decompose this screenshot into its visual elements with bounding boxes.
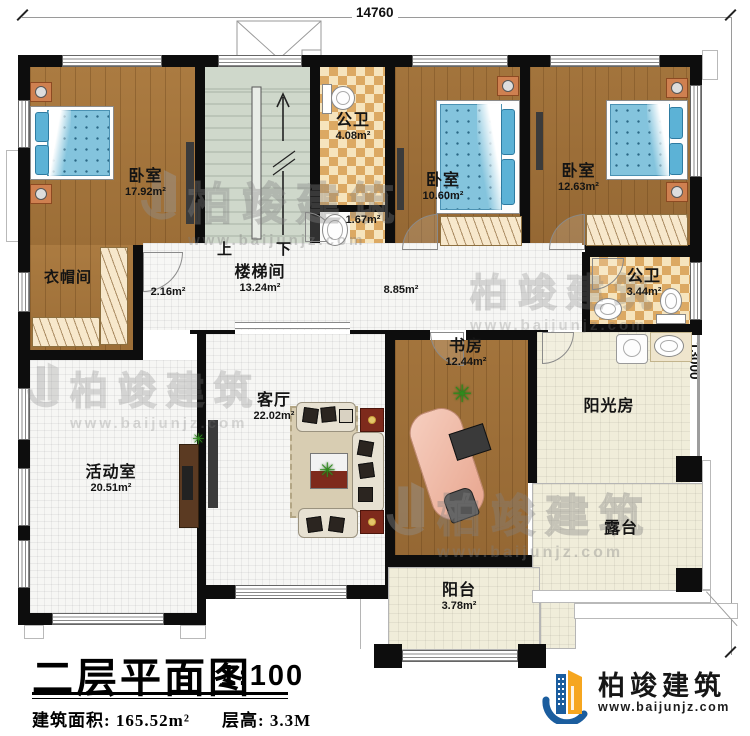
balcony-left-line (360, 599, 361, 649)
room-label-study: 书房12.44m² (438, 338, 494, 368)
plant: ✳ (319, 458, 336, 483)
terrace-post (676, 456, 702, 482)
stairs-down-label: 下 (272, 242, 296, 259)
terrace-parapet-right (702, 460, 711, 590)
room-label-bath-right: 公卫3.44m² (618, 268, 670, 298)
study-top-wall-a (395, 330, 430, 340)
window (18, 540, 30, 588)
brand-logo-icon (538, 666, 596, 724)
window (18, 100, 30, 148)
sofa-top (296, 402, 356, 432)
window (235, 585, 347, 599)
toilet-bowl (331, 86, 355, 110)
cloak-activity-wall (18, 350, 143, 360)
tv-unit (208, 420, 218, 508)
window (18, 388, 30, 440)
sunroom-glass-wall (697, 335, 700, 461)
study-bottom-wall (385, 555, 538, 567)
window (218, 55, 302, 67)
plan-scale: 1:100 (220, 660, 304, 693)
room-label-bedroom-right: 卧室12.63m² (526, 163, 631, 193)
bathR-bottom-wall (582, 324, 690, 332)
balcony-post (518, 644, 546, 668)
room-label-cloak-hall: 2.16m² (146, 286, 190, 298)
balcony-post (374, 644, 402, 668)
floor-plan-page: 14760 13000 (0, 0, 750, 736)
window (52, 613, 164, 625)
sofa-bottom (298, 508, 358, 538)
dimension-tick (16, 9, 28, 21)
hall-living-threshold (235, 322, 350, 329)
nightstand (666, 78, 688, 98)
window (690, 85, 702, 177)
wardrobe (586, 214, 688, 246)
room-label-bedroom-left: 卧室17.92m² (88, 168, 203, 198)
room-label-corridor: 8.85m² (378, 284, 424, 296)
title-underline (32, 692, 288, 695)
room-label-bedroom-mid: 卧室10.60m² (393, 172, 493, 202)
room-label-activity: 活动室20.51m² (76, 464, 146, 494)
window (550, 55, 660, 67)
sink (654, 335, 684, 357)
room-label-bath-annex: 1.67m² (340, 214, 386, 226)
plan-title: 二层平面图 (32, 644, 252, 704)
room-label-balcony: 阳台3.78m² (436, 582, 482, 612)
toilet-tank (656, 314, 686, 324)
stairs-up-label: 上 (213, 242, 237, 259)
monitor (182, 466, 193, 500)
study-sunroom-wall (528, 330, 537, 483)
washing-machine-drum (623, 339, 641, 357)
brand-text-block: 柏竣建筑 www.baijunjz.com (598, 672, 730, 714)
room-label-cloakroom: 衣帽间 (34, 270, 102, 287)
nightstand (30, 184, 52, 204)
window (18, 272, 30, 312)
window-sill (180, 625, 206, 639)
window (412, 55, 508, 67)
side-table (360, 510, 384, 534)
room-label-living: 客厅22.02m² (244, 392, 304, 422)
right-dimension-line (731, 17, 732, 655)
window (18, 468, 30, 526)
side-table (360, 408, 384, 432)
bed3-bottom-wall (585, 245, 690, 257)
cloak-closet-horizontal (32, 317, 100, 347)
bath-divider-wall (310, 205, 385, 212)
stairs (205, 67, 310, 243)
title-underline-thin (32, 698, 288, 699)
balcony-parapet-rail (402, 650, 518, 662)
sink (594, 298, 622, 320)
plant: ✳ (452, 380, 472, 409)
room-label-sunroom: 阳光房 (576, 398, 642, 416)
wall-bath-bed2 (385, 55, 395, 252)
room-label-stair-hall: 楼梯间13.24m² (226, 264, 294, 294)
plant: ✳ (192, 430, 205, 448)
cloak-closet-vertical (100, 247, 128, 345)
brand-name: 柏竣建筑 (598, 672, 730, 700)
window (690, 262, 702, 320)
room-label-bath-top: 公卫4.08m² (320, 112, 386, 142)
nightstand (30, 82, 52, 102)
nightstand (497, 76, 519, 96)
build-area-text: 建筑面积: 165.52m² (32, 706, 190, 731)
cloak-right-wall (133, 245, 143, 350)
sofa-right (352, 432, 384, 512)
window (62, 55, 162, 67)
nightstand (666, 182, 688, 202)
hall-floor (143, 243, 582, 330)
tv-unit (536, 112, 543, 170)
top-dimension-value: 14760 (352, 5, 398, 20)
brand-url[interactable]: www.baijunjz.com (598, 700, 730, 714)
wardrobe (440, 216, 522, 246)
terrace-post (676, 568, 702, 592)
ac-platform (702, 50, 718, 80)
terrace-parapet-step2 (574, 603, 738, 619)
window-sill (24, 625, 44, 639)
floor-height-text: 层高: 3.3M (222, 706, 311, 731)
study-left-wall (385, 318, 395, 585)
wall-bed1-stair (195, 55, 205, 245)
room-label-terrace: 露台 (598, 520, 644, 538)
bathR-left-wall (582, 252, 590, 332)
